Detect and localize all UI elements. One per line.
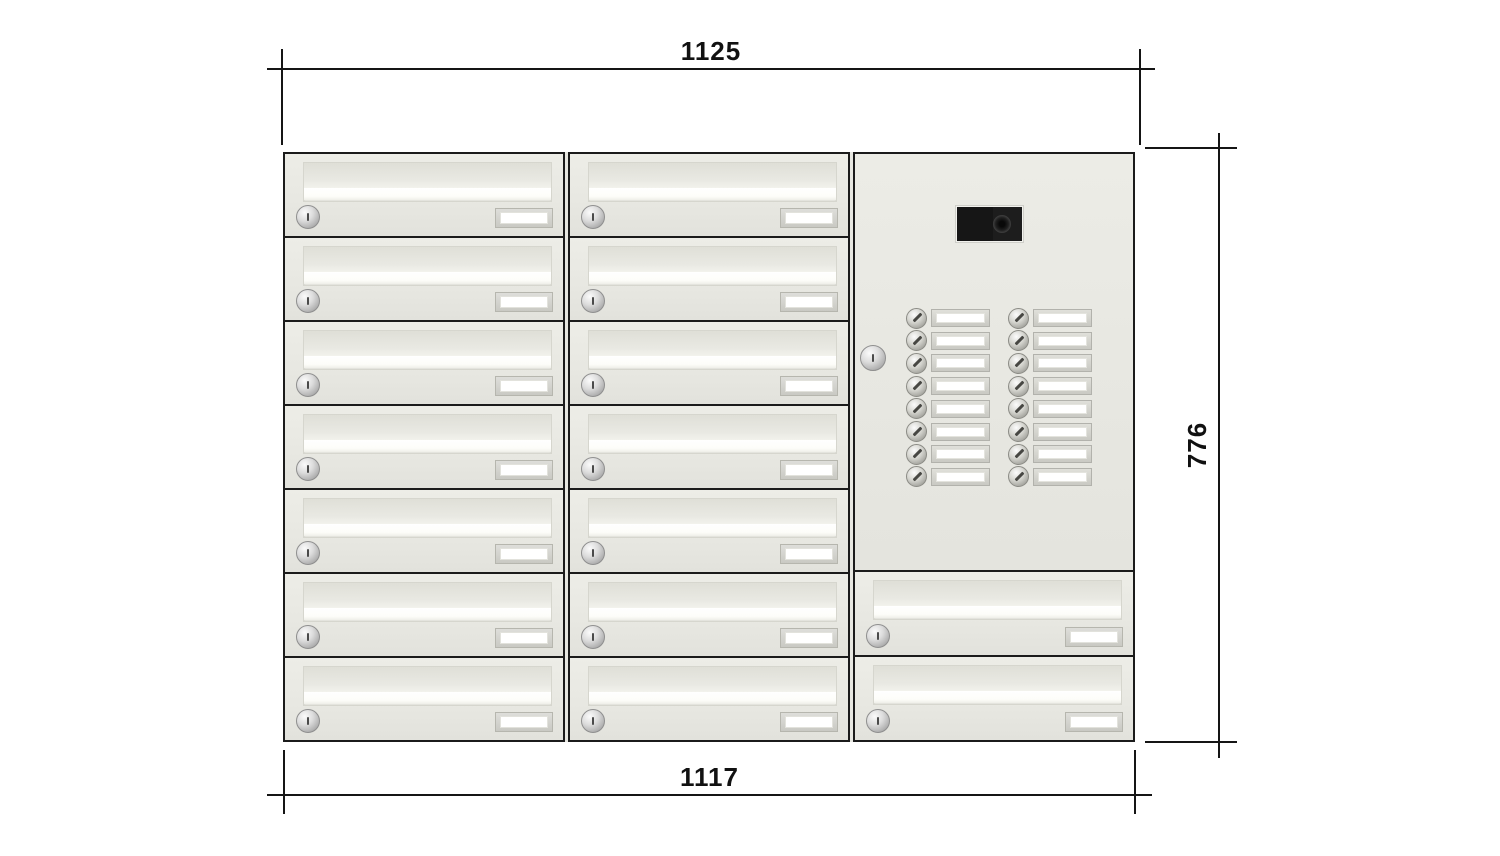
intercom-panel bbox=[855, 154, 1133, 572]
bell-name-plate-window bbox=[936, 404, 985, 414]
letter-slot-opening bbox=[589, 356, 836, 368]
letter-slot bbox=[588, 330, 837, 370]
letter-slot-flap bbox=[304, 667, 551, 692]
height-dimension-extension-bottom bbox=[1145, 741, 1237, 743]
name-plate-window bbox=[785, 380, 833, 392]
letter-slot-opening bbox=[589, 188, 836, 200]
mailbox-door bbox=[570, 574, 848, 658]
bell-button-icon bbox=[1008, 444, 1029, 465]
name-plate bbox=[495, 712, 553, 732]
letter-slot bbox=[873, 580, 1122, 620]
cylinder-lock-icon bbox=[581, 205, 605, 229]
name-plate bbox=[780, 208, 838, 228]
letter-slot-flap bbox=[304, 163, 551, 188]
letter-slot bbox=[303, 666, 552, 706]
name-plate bbox=[780, 292, 838, 312]
letter-slot-flap bbox=[589, 163, 836, 188]
name-plate bbox=[780, 712, 838, 732]
bell-name-plate-window bbox=[936, 427, 985, 437]
bell-name-plate bbox=[1033, 400, 1092, 418]
bell-name-plate bbox=[931, 354, 990, 372]
name-plate bbox=[780, 544, 838, 564]
bell-button-icon bbox=[906, 308, 927, 329]
letter-slot bbox=[303, 162, 552, 202]
mailbox-door bbox=[570, 490, 848, 574]
bell-name-plate-window bbox=[936, 472, 985, 482]
mailbox-door bbox=[855, 572, 1133, 657]
bell-name-plate-window bbox=[936, 313, 985, 323]
cylinder-lock-icon bbox=[296, 289, 320, 313]
bell-name-plate bbox=[1033, 468, 1092, 486]
name-plate bbox=[780, 376, 838, 396]
letter-slot-opening bbox=[304, 692, 551, 704]
name-plate-window bbox=[785, 716, 833, 728]
bell-name-plate-window bbox=[1038, 472, 1087, 482]
name-plate bbox=[495, 208, 553, 228]
letter-slot-flap bbox=[304, 247, 551, 272]
bottom-dimension-line bbox=[267, 794, 1152, 796]
letter-slot bbox=[303, 330, 552, 370]
letter-slot bbox=[303, 582, 552, 622]
name-plate bbox=[495, 628, 553, 648]
bell-name-plate-window bbox=[936, 358, 985, 368]
name-plate-window bbox=[1070, 716, 1118, 728]
mailbox-door bbox=[570, 322, 848, 406]
name-plate bbox=[495, 376, 553, 396]
bell-name-plate bbox=[931, 468, 990, 486]
letter-slot-opening bbox=[304, 440, 551, 452]
letter-slot-flap bbox=[589, 499, 836, 524]
cylinder-lock-icon bbox=[581, 625, 605, 649]
letter-slot-opening bbox=[304, 608, 551, 620]
cylinder-lock-icon bbox=[866, 624, 890, 648]
bell-name-plate bbox=[1033, 354, 1092, 372]
letter-slot bbox=[588, 162, 837, 202]
cylinder-lock-icon bbox=[296, 457, 320, 481]
cylinder-lock-icon bbox=[296, 541, 320, 565]
camera-lens-icon bbox=[993, 215, 1011, 233]
bell-name-plate bbox=[1033, 423, 1092, 441]
cylinder-lock-icon bbox=[581, 457, 605, 481]
bell-button-icon bbox=[906, 398, 927, 419]
bell-name-plate bbox=[931, 400, 990, 418]
letter-slot-opening bbox=[589, 524, 836, 536]
bell-name-plate-window bbox=[1038, 336, 1087, 346]
bell-button-icon bbox=[906, 421, 927, 442]
letter-slot bbox=[873, 665, 1122, 705]
letter-slot-opening bbox=[589, 692, 836, 704]
letter-slot-opening bbox=[589, 608, 836, 620]
letter-slot-flap bbox=[589, 331, 836, 356]
bell-button-icon bbox=[1008, 421, 1029, 442]
cylinder-lock-icon bbox=[296, 709, 320, 733]
bell-name-plate-window bbox=[936, 449, 985, 459]
letter-slot-flap bbox=[874, 666, 1121, 691]
camera-module bbox=[956, 206, 1023, 242]
mailbox-cabinet bbox=[283, 152, 1135, 742]
bell-button-icon bbox=[906, 353, 927, 374]
mailbox-door bbox=[570, 406, 848, 490]
name-plate-window bbox=[1070, 631, 1118, 643]
bell-name-plate-window bbox=[1038, 313, 1087, 323]
bell-name-plate bbox=[1033, 377, 1092, 395]
letter-slot-opening bbox=[304, 356, 551, 368]
bell-name-plate-window bbox=[1038, 427, 1087, 437]
letter-slot-opening bbox=[589, 440, 836, 452]
name-plate-window bbox=[500, 380, 548, 392]
mailbox-door bbox=[285, 574, 563, 658]
bell-name-plate bbox=[931, 423, 990, 441]
name-plate-window bbox=[500, 296, 548, 308]
letter-slot-flap bbox=[589, 583, 836, 608]
name-plate-window bbox=[785, 548, 833, 560]
cylinder-lock-icon bbox=[581, 541, 605, 565]
bell-name-plate bbox=[1033, 332, 1092, 350]
name-plate bbox=[495, 460, 553, 480]
letter-slot-flap bbox=[589, 247, 836, 272]
bell-button-icon bbox=[1008, 376, 1029, 397]
mailbox-column-right bbox=[853, 152, 1135, 742]
bell-name-plate-window bbox=[1038, 449, 1087, 459]
letter-slot bbox=[303, 414, 552, 454]
cylinder-lock-icon bbox=[296, 625, 320, 649]
cylinder-lock-icon bbox=[296, 373, 320, 397]
cylinder-lock-icon bbox=[866, 709, 890, 733]
letter-slot-flap bbox=[304, 583, 551, 608]
letter-slot-opening bbox=[874, 606, 1121, 618]
bell-name-plate bbox=[1033, 445, 1092, 463]
height-dimension-line bbox=[1218, 133, 1220, 758]
name-plate-window bbox=[785, 464, 833, 476]
bell-name-plate bbox=[931, 332, 990, 350]
bell-name-plate bbox=[931, 309, 990, 327]
bottom-width-dimension-label: 1117 bbox=[284, 762, 1135, 793]
height-dimension-label: 776 bbox=[1182, 395, 1210, 495]
letter-slot-flap bbox=[589, 667, 836, 692]
name-plate bbox=[1065, 627, 1123, 647]
letter-slot bbox=[303, 246, 552, 286]
cylinder-lock-icon bbox=[296, 205, 320, 229]
mailbox-door bbox=[570, 658, 848, 740]
bell-name-plate bbox=[1033, 309, 1092, 327]
name-plate bbox=[495, 544, 553, 564]
bell-name-plate bbox=[931, 445, 990, 463]
bell-button-icon bbox=[906, 444, 927, 465]
mailbox-column-left bbox=[283, 152, 565, 742]
name-plate bbox=[780, 460, 838, 480]
letter-slot bbox=[588, 582, 837, 622]
letter-slot-opening bbox=[589, 272, 836, 284]
bell-button-icon bbox=[1008, 398, 1029, 419]
height-dimension-extension-top bbox=[1145, 147, 1237, 149]
letter-slot bbox=[303, 498, 552, 538]
bell-button-icon bbox=[1008, 330, 1029, 351]
bell-button-icon bbox=[906, 466, 927, 487]
letter-slot-opening bbox=[304, 524, 551, 536]
letter-slot bbox=[588, 414, 837, 454]
mailbox-door bbox=[285, 406, 563, 490]
letter-slot-flap bbox=[304, 499, 551, 524]
letter-slot-flap bbox=[304, 331, 551, 356]
name-plate-window bbox=[785, 296, 833, 308]
name-plate-window bbox=[785, 632, 833, 644]
bell-button-icon bbox=[906, 330, 927, 351]
bell-button-icon bbox=[1008, 308, 1029, 329]
letter-slot-flap bbox=[874, 581, 1121, 606]
mailbox-door bbox=[285, 238, 563, 322]
letter-slot-opening bbox=[874, 691, 1121, 703]
mailbox-door bbox=[570, 154, 848, 238]
top-width-dimension-label: 1125 bbox=[282, 36, 1140, 67]
mailbox-column-middle bbox=[568, 152, 850, 742]
cylinder-lock-icon bbox=[581, 373, 605, 397]
name-plate bbox=[495, 292, 553, 312]
name-plate bbox=[780, 628, 838, 648]
bell-name-plate-window bbox=[936, 381, 985, 391]
letter-slot-flap bbox=[304, 415, 551, 440]
name-plate-window bbox=[500, 464, 548, 476]
name-plate-window bbox=[500, 212, 548, 224]
bell-button-icon bbox=[1008, 353, 1029, 374]
bell-button-icon bbox=[906, 376, 927, 397]
name-plate-window bbox=[500, 548, 548, 560]
mailbox-door bbox=[570, 238, 848, 322]
intercom-lock-icon bbox=[860, 345, 886, 371]
letter-slot-flap bbox=[589, 415, 836, 440]
cylinder-lock-icon bbox=[581, 709, 605, 733]
letter-slot bbox=[588, 666, 837, 706]
bell-name-plate-window bbox=[1038, 404, 1087, 414]
letter-slot bbox=[588, 498, 837, 538]
bell-name-plate-window bbox=[1038, 381, 1087, 391]
name-plate-window bbox=[500, 632, 548, 644]
name-plate bbox=[1065, 712, 1123, 732]
mailbox-door bbox=[285, 322, 563, 406]
mailbox-door bbox=[285, 490, 563, 574]
name-plate-window bbox=[500, 716, 548, 728]
letter-slot bbox=[588, 246, 837, 286]
mailbox-technical-drawing: 1125 1117 776 bbox=[0, 0, 1500, 856]
bell-button-icon bbox=[1008, 466, 1029, 487]
bell-name-plate bbox=[931, 377, 990, 395]
mailbox-door bbox=[285, 154, 563, 238]
cylinder-lock-icon bbox=[581, 289, 605, 313]
bell-name-plate-window bbox=[1038, 358, 1087, 368]
mailbox-door bbox=[855, 657, 1133, 740]
top-dimension-line bbox=[267, 68, 1155, 70]
bell-name-plate-window bbox=[936, 336, 985, 346]
mailbox-door bbox=[285, 658, 563, 740]
name-plate-window bbox=[785, 212, 833, 224]
letter-slot-opening bbox=[304, 272, 551, 284]
letter-slot-opening bbox=[304, 188, 551, 200]
camera-display-area bbox=[957, 207, 993, 241]
